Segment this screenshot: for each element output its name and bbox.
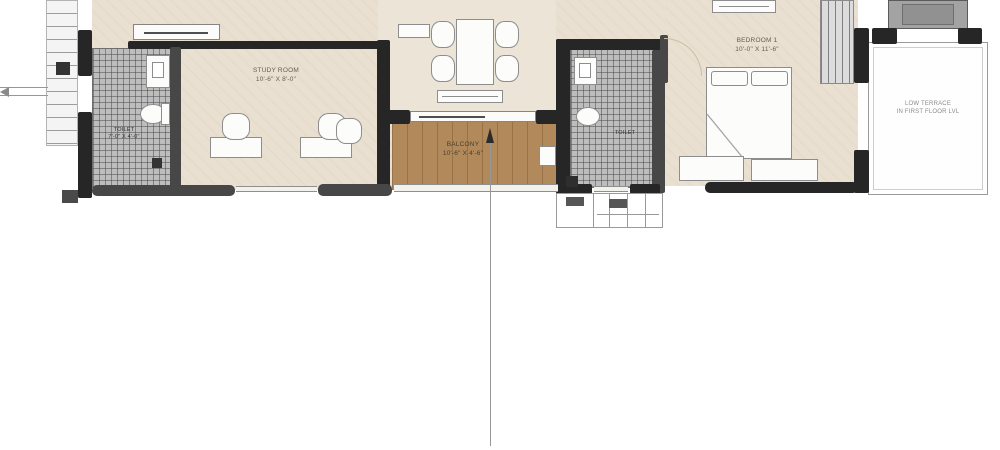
passage-floor xyxy=(556,0,668,42)
sideboard xyxy=(398,24,430,38)
window-toilet-right-bottom xyxy=(594,186,628,192)
wall-toilet-right-top xyxy=(556,39,666,50)
washbasin-right xyxy=(574,57,597,85)
toilet-right-label: TOILET xyxy=(600,130,650,137)
wall-balcony-stub-left xyxy=(388,110,410,124)
wall-bottom-2 xyxy=(318,184,392,196)
toilet-left-name: TOILET xyxy=(114,127,134,133)
toilet-right-name: TOILET xyxy=(615,130,635,136)
bed-bench-right xyxy=(751,159,818,181)
bed-bench-left xyxy=(679,156,744,181)
wall-bottom-corner xyxy=(78,175,92,198)
study-room-name: STUDY ROOM xyxy=(253,67,299,74)
balcony-sliding-door xyxy=(410,111,536,122)
floor-plan: STUDY ROOM 10'-6" X 8'-0" BEDROOM 1 10'-… xyxy=(0,0,1000,450)
wardrobe xyxy=(820,0,854,84)
balcony-unit xyxy=(539,146,556,166)
wall-bedroom-terrace-upper xyxy=(854,28,869,83)
ledge-dark-box-2 xyxy=(609,199,627,208)
balcony-railing xyxy=(394,184,558,192)
terrace-inner-line xyxy=(873,47,983,190)
ledge-dark-box-1 xyxy=(566,197,584,206)
window-bottom xyxy=(236,186,317,192)
wc-left-tank xyxy=(161,103,170,125)
washbasin-left xyxy=(146,55,170,88)
dimension-arrow xyxy=(0,87,9,97)
bedroom-dims: 10'-0" X 11'-6" xyxy=(707,46,807,55)
wall-terrace-block-right xyxy=(958,28,982,44)
car-on-terrace xyxy=(888,0,968,29)
dining-chair-1 xyxy=(431,21,455,48)
section-leader-line xyxy=(490,143,491,446)
floor-drain-right xyxy=(566,176,578,187)
wc-right xyxy=(576,107,600,126)
dining-chair-2 xyxy=(431,55,455,82)
terrace-line2: IN FIRST FLOOR LVL xyxy=(878,108,978,116)
top-cut-label-center: 10'-6" X 9'-0" xyxy=(440,0,540,2)
bedroom-name: BEDROOM 1 xyxy=(737,37,778,44)
balcony-name: BALCONY xyxy=(447,141,479,148)
toilet-left-dims: 7'-0" X 4'-0" xyxy=(97,134,151,141)
window-kitchen-counter xyxy=(133,24,220,40)
dining-console xyxy=(437,90,503,103)
pillow-2 xyxy=(751,71,788,86)
service-ledge xyxy=(556,193,663,228)
wall-toilet-left-divider xyxy=(170,47,181,193)
service-dark-box-1 xyxy=(56,62,70,75)
dining-chair-4 xyxy=(495,55,519,82)
study-room-dims: 10'-6" X 8'-0" xyxy=(226,76,326,85)
toilet-left-label: TOILET 7'-0" X 4'-0" xyxy=(97,127,151,142)
blanket-fold xyxy=(707,114,743,158)
low-terrace xyxy=(868,42,988,195)
wall-bedroom-terrace-lower xyxy=(854,150,869,193)
wall-left-upper xyxy=(78,30,92,76)
dresser xyxy=(712,0,776,13)
bedroom-label: BEDROOM 1 10'-0" X 11'-6" xyxy=(707,37,807,55)
wall-study-top xyxy=(128,41,390,49)
dining-chair-3 xyxy=(495,21,519,48)
balcony-label: BALCONY 10'-6" X 4'-6" xyxy=(413,141,513,159)
study-chair-3 xyxy=(336,118,362,144)
wall-bottom-1 xyxy=(92,185,235,196)
wall-bedroom-bottom xyxy=(705,182,858,193)
wall-terrace-block-left xyxy=(872,28,897,44)
study-room-label: STUDY ROOM 10'-6" X 8'-0" xyxy=(226,67,326,85)
terrace-line1: LOW TERRACE xyxy=(905,101,951,107)
top-cut-label-left: 12'-0" X 9'-0" xyxy=(140,0,230,2)
wall-toilet-right-left xyxy=(556,39,570,195)
floor-drain-left xyxy=(152,158,162,168)
balcony-dims: 10'-6" X 4'-6" xyxy=(413,150,513,159)
pillow-1 xyxy=(711,71,748,86)
service-dark-box-2 xyxy=(62,190,78,203)
study-chair-1 xyxy=(222,113,250,140)
study-desk-1 xyxy=(210,137,262,158)
terrace-label: LOW TERRACE IN FIRST FLOOR LVL xyxy=(878,100,978,116)
dining-table xyxy=(456,19,494,85)
